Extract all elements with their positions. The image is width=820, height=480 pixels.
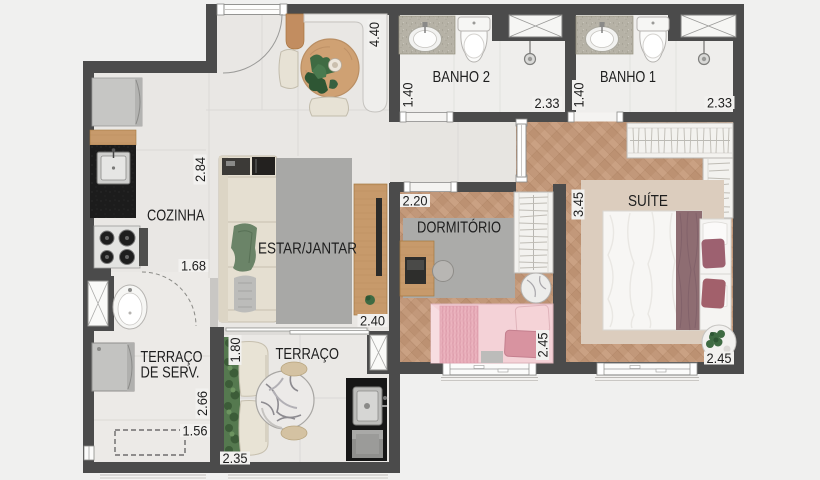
svg-text:2.40: 2.40 [360, 313, 385, 329]
svg-text:1.80: 1.80 [227, 337, 243, 362]
svg-text:1.68: 1.68 [181, 258, 206, 274]
svg-text:SUÍTE: SUÍTE [628, 191, 668, 210]
svg-text:2.35: 2.35 [223, 450, 248, 466]
svg-text:4.40: 4.40 [366, 22, 382, 47]
svg-text:COZINHA: COZINHA [147, 208, 205, 225]
svg-text:1.56: 1.56 [183, 423, 208, 439]
svg-text:BANHO 1: BANHO 1 [600, 69, 656, 86]
svg-text:2.84: 2.84 [192, 157, 208, 182]
svg-text:DE SERV.: DE SERV. [141, 365, 200, 382]
svg-text:2.45: 2.45 [535, 332, 551, 357]
svg-text:2.45: 2.45 [707, 350, 732, 366]
svg-text:TERRAÇO: TERRAÇO [276, 346, 340, 363]
svg-text:2.33: 2.33 [535, 95, 560, 111]
svg-text:DORMITÓRIO: DORMITÓRIO [417, 218, 501, 237]
svg-text:TERRAÇO: TERRAÇO [141, 349, 203, 366]
svg-text:1.40: 1.40 [571, 82, 587, 107]
svg-text:ESTAR/JANTAR: ESTAR/JANTAR [258, 241, 357, 258]
svg-text:BANHO 2: BANHO 2 [433, 69, 491, 86]
svg-text:2.66: 2.66 [194, 391, 210, 416]
svg-text:1.40: 1.40 [400, 82, 416, 107]
svg-text:3.45: 3.45 [570, 192, 586, 217]
svg-text:2.33: 2.33 [707, 95, 732, 111]
svg-text:2.20: 2.20 [403, 193, 428, 209]
